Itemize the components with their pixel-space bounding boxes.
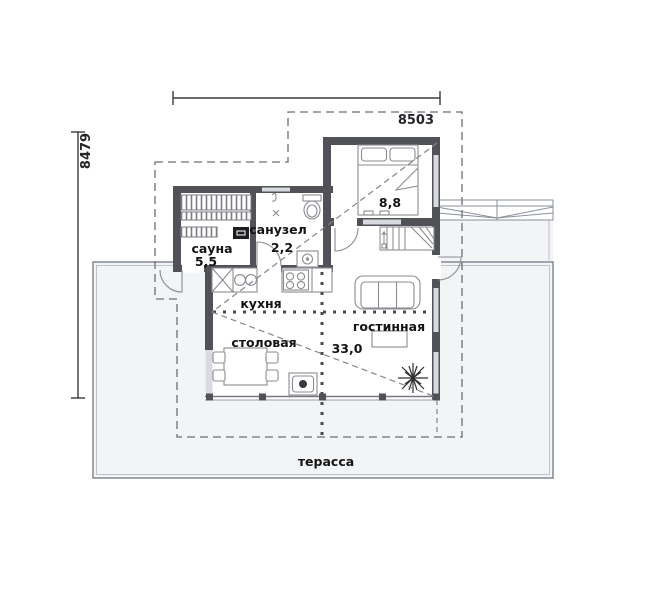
- label-kitchen: кухня: [240, 296, 281, 311]
- dining-table-icon: [224, 348, 267, 385]
- sauna-bench-upper: [181, 195, 251, 210]
- window-bedroom: [434, 155, 439, 207]
- opening-bedroom-door: [334, 218, 357, 227]
- wall-bedroom-left: [323, 137, 331, 272]
- label-dining: столовая: [231, 335, 296, 350]
- railing-stairwell: [363, 220, 401, 225]
- sauna-bench-lower: [181, 227, 217, 237]
- label-terrace: терасса: [298, 454, 354, 469]
- dim-top-value: 8503: [398, 113, 434, 128]
- sauna-room: [181, 195, 251, 239]
- sofa-icon: [355, 276, 420, 309]
- post-2: [259, 394, 266, 401]
- fireplace-core: [299, 380, 307, 388]
- dim-left-value: 8479: [79, 133, 94, 169]
- chair-left-1: [213, 352, 225, 363]
- wall-bedroom-top: [323, 137, 440, 145]
- wall-sauna-top: [173, 186, 333, 193]
- window-dining-left: [206, 350, 213, 396]
- opening-bathroom-door: [257, 265, 281, 273]
- opening-living-door: [432, 255, 441, 279]
- washing-machine-dot: [306, 257, 309, 260]
- chair-right-2: [266, 370, 278, 381]
- area-sauna: 5,5: [195, 254, 217, 269]
- chair-left-2: [213, 370, 225, 381]
- post-4: [379, 394, 386, 401]
- stairs-outline: [380, 227, 434, 250]
- post-1: [206, 394, 213, 401]
- toilet-tank: [303, 195, 321, 201]
- floor-plan-drawing: 8503 8479 сауна 5,5 санузел 2,2 кухня ст…: [0, 0, 661, 600]
- sauna-bench-middle: [181, 212, 251, 220]
- area-bedroom: 8,8: [379, 195, 401, 210]
- stairs-icon: [380, 227, 434, 250]
- post-5: [433, 394, 440, 401]
- toilet-icon: [304, 201, 320, 219]
- label-bathroom: санузел: [249, 222, 307, 237]
- window-living-2: [434, 352, 439, 394]
- area-living: 33,0: [332, 341, 363, 356]
- sauna-heater-icon: [233, 227, 249, 239]
- chair-right-1: [266, 352, 278, 363]
- entrance-ramp: [437, 200, 553, 220]
- terrace-fill-right: [437, 220, 553, 262]
- area-bathroom: 2,2: [271, 240, 293, 255]
- window-bathroom: [262, 188, 290, 192]
- label-living: гостинная: [353, 319, 425, 334]
- window-living-1: [434, 288, 439, 332]
- floor-plan-page: 8503 8479 сауна 5,5 санузел 2,2 кухня ст…: [0, 0, 661, 600]
- wall-sauna-left: [173, 186, 181, 272]
